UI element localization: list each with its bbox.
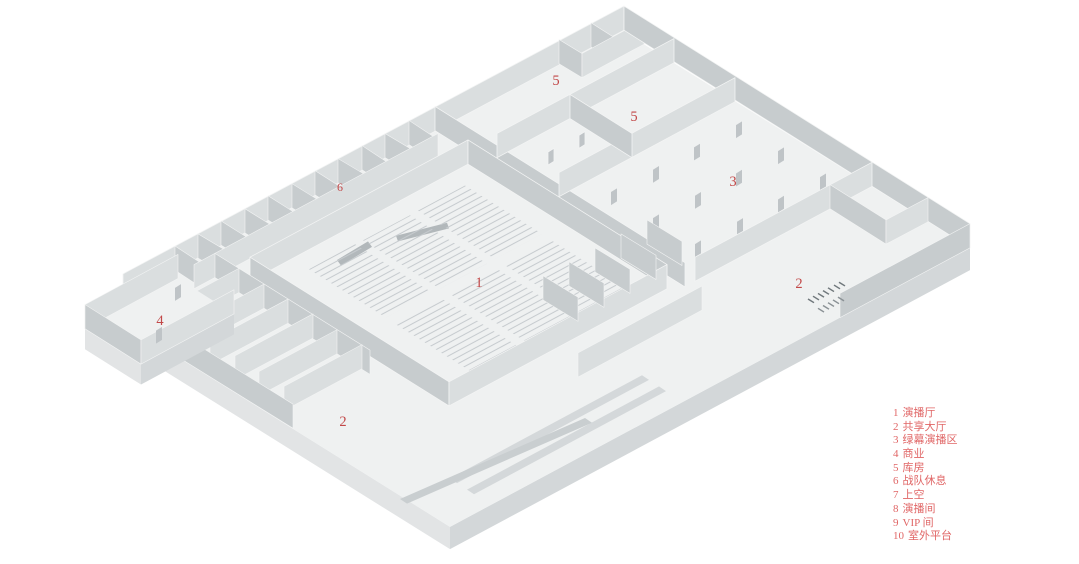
legend-item-label: 演播厅 <box>903 407 936 419</box>
legend-item-number: 1 <box>893 407 899 419</box>
area-marker-team-rest: 6 <box>337 181 343 193</box>
area-marker-studio-hall: 1 <box>475 276 482 291</box>
legend-item-label: VIP 间 <box>903 517 934 529</box>
legend-item: 6战队休息 <box>893 475 958 489</box>
legend-item: 3绿幕演播区 <box>893 434 958 448</box>
legend-item-number: 6 <box>893 475 899 487</box>
legend-item-number: 5 <box>893 462 899 474</box>
area-marker-storage: 5 <box>630 110 637 125</box>
legend-item: 10室外平台 <box>893 530 958 544</box>
legend-item-label: 室外平台 <box>908 530 952 542</box>
legend-item: 9VIP 间 <box>893 517 958 531</box>
legend-item-label: 绿幕演播区 <box>903 434 958 446</box>
legend-item-label: 战队休息 <box>903 475 947 487</box>
legend-item: 8演播间 <box>893 503 958 517</box>
legend-item-number: 9 <box>893 517 899 529</box>
legend-item-label: 库房 <box>903 462 925 474</box>
legend-item-label: 商业 <box>903 448 925 460</box>
legend-item-number: 8 <box>893 503 899 515</box>
area-marker-shared-hall: 2 <box>795 277 802 292</box>
area-marker-green-screen: 3 <box>729 175 736 190</box>
legend-item: 5库房 <box>893 462 958 476</box>
area-marker-commercial: 4 <box>156 314 163 329</box>
legend-item-number: 3 <box>893 434 899 446</box>
legend-item-label: 演播间 <box>903 503 936 515</box>
axonometric-floor-plan-page: { "plan": { "description_markers": [ {"n… <box>0 0 1079 564</box>
area-marker-shared-hall: 2 <box>339 415 346 430</box>
legend-item: 1演播厅 <box>893 407 958 421</box>
legend-item-number: 7 <box>893 489 899 501</box>
legend-item: 7上空 <box>893 489 958 503</box>
legend-item-number: 10 <box>893 530 904 542</box>
legend-item-label: 共享大厅 <box>903 421 947 433</box>
legend-item-label: 上空 <box>903 489 925 501</box>
area-marker-storage: 5 <box>552 74 559 89</box>
legend: 1演播厅 2共享大厅 3绿幕演播区 4商业 5库房 6战队休息 7上空 8演播间… <box>893 407 958 544</box>
legend-item-number: 2 <box>893 421 899 433</box>
legend-item-number: 4 <box>893 448 899 460</box>
legend-item: 4商业 <box>893 448 958 462</box>
legend-item: 2共享大厅 <box>893 421 958 435</box>
